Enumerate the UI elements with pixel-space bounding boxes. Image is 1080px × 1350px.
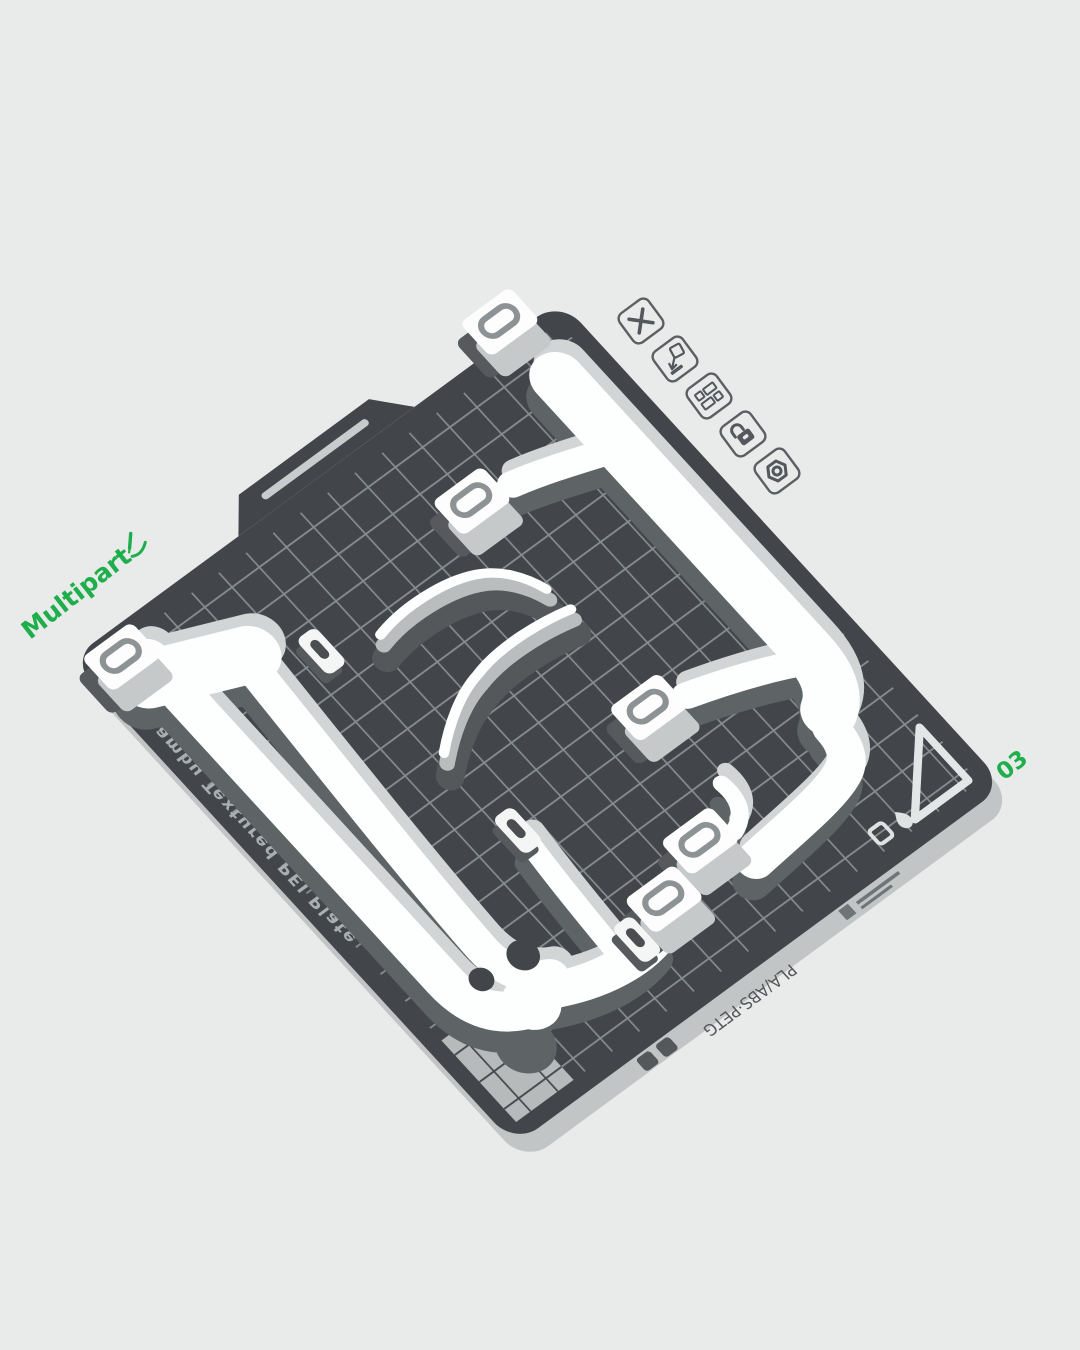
viewport-3d[interactable]: Bambu Textured PEI Plate PLA/ABS·PETG — [0, 0, 1080, 1350]
scene-canvas: Bambu Textured PEI Plate PLA/ABS·PETG — [0, 0, 1080, 1350]
